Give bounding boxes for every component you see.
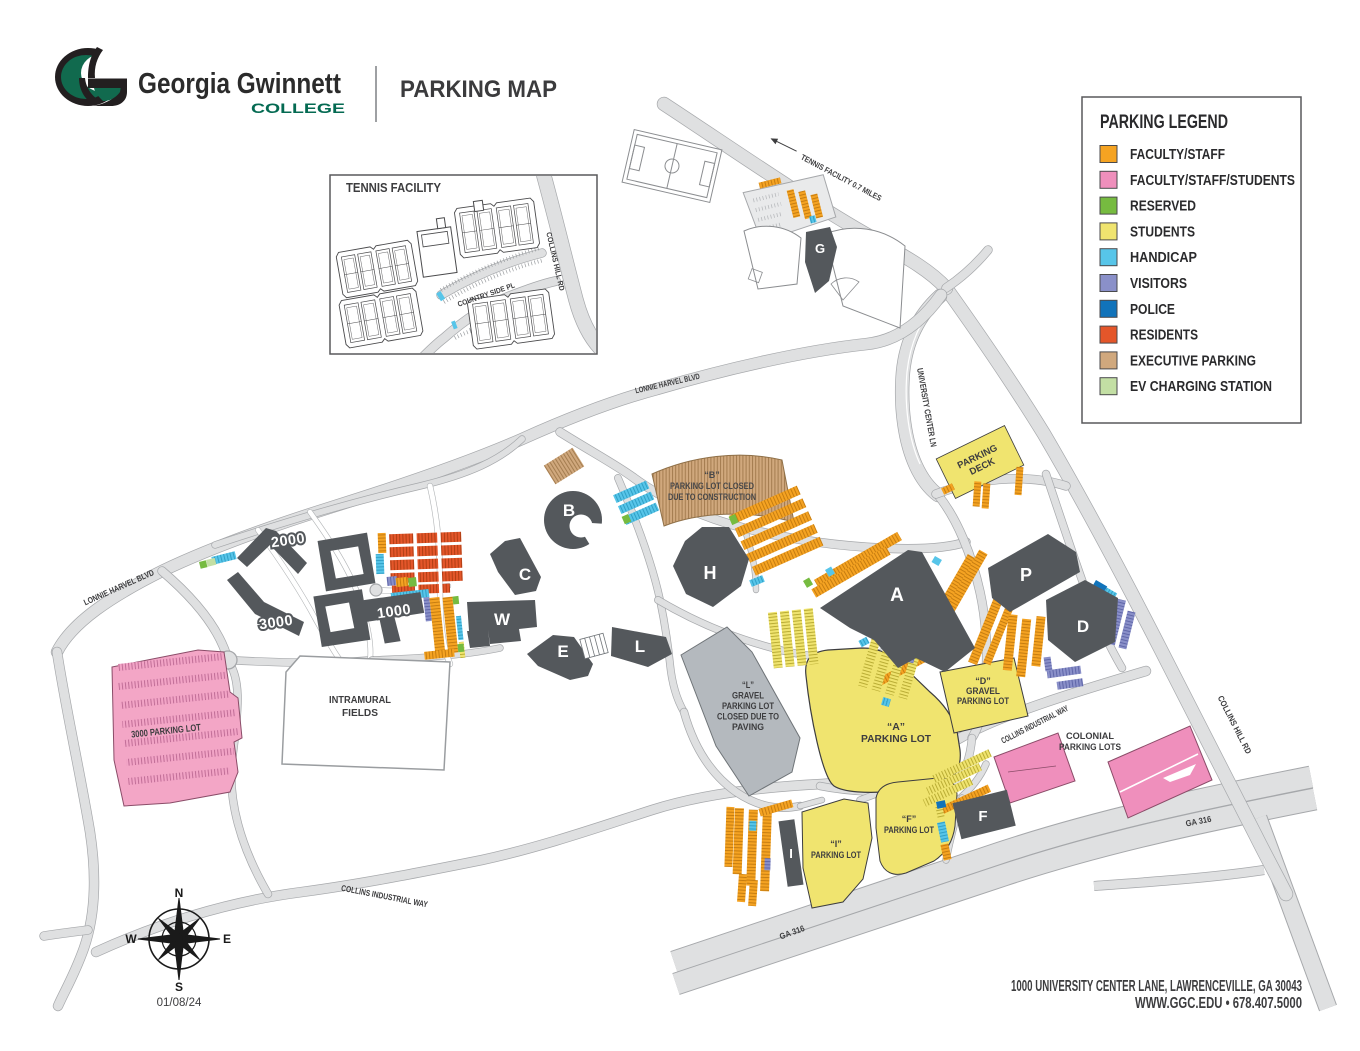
svg-text:INTRAMURAL: INTRAMURAL xyxy=(329,694,392,706)
svg-text:COLONIAL: COLONIAL xyxy=(1066,731,1114,742)
svg-text:W: W xyxy=(125,932,137,946)
svg-text:STUDENTS: STUDENTS xyxy=(1130,224,1195,240)
svg-text:HANDICAP: HANDICAP xyxy=(1130,250,1197,266)
svg-text:F: F xyxy=(978,808,987,825)
svg-text:EXECUTIVE PARKING: EXECUTIVE PARKING xyxy=(1130,353,1256,369)
svg-text:POLICE: POLICE xyxy=(1130,302,1175,318)
svg-text:GRAVEL: GRAVEL xyxy=(966,686,1000,696)
svg-text:FACULTY/STAFF/STUDENTS: FACULTY/STAFF/STUDENTS xyxy=(1130,173,1295,189)
svg-text:P: P xyxy=(1020,565,1032,585)
svg-text:DUE TO CONSTRUCTION: DUE TO CONSTRUCTION xyxy=(668,492,756,502)
svg-text:1000: 1000 xyxy=(376,602,412,623)
svg-text:H: H xyxy=(704,563,717,583)
svg-text:PARKING LOT: PARKING LOT xyxy=(811,850,861,860)
svg-text:PARKING LOT: PARKING LOT xyxy=(722,701,774,711)
svg-text:“F”: “F” xyxy=(902,814,917,824)
svg-text:PARKING LEGEND: PARKING LEGEND xyxy=(1100,112,1228,133)
svg-text:“L”: “L” xyxy=(742,680,754,690)
svg-text:L: L xyxy=(635,637,645,656)
svg-text:2000: 2000 xyxy=(270,531,306,552)
svg-text:COLLINS INDUSTRIAL WAY: COLLINS INDUSTRIAL WAY xyxy=(340,883,429,910)
svg-text:GRAVEL: GRAVEL xyxy=(732,691,764,701)
svg-text:CLOSED DUE TO: CLOSED DUE TO xyxy=(717,712,779,722)
svg-text:RESERVED: RESERVED xyxy=(1130,199,1196,215)
svg-text:E: E xyxy=(223,932,231,946)
svg-text:COLLEGE: COLLEGE xyxy=(251,100,345,116)
svg-text:S: S xyxy=(175,980,183,994)
svg-text:“A”: “A” xyxy=(887,721,905,733)
svg-text:EV CHARGING STATION: EV CHARGING STATION xyxy=(1130,379,1272,395)
svg-text:W: W xyxy=(494,610,511,629)
svg-text:01/08/24: 01/08/24 xyxy=(157,997,202,1009)
svg-text:PARKING LOT: PARKING LOT xyxy=(884,825,934,835)
svg-text:1000 UNIVERSITY CENTER LANE, L: 1000 UNIVERSITY CENTER LANE, LAWRENCEVIL… xyxy=(1011,978,1302,995)
svg-text:PARKING LOT: PARKING LOT xyxy=(957,696,1009,706)
svg-text:“B”: “B” xyxy=(704,470,720,480)
svg-text:RESIDENTS: RESIDENTS xyxy=(1130,328,1198,344)
svg-text:E: E xyxy=(557,642,568,661)
svg-text:G: G xyxy=(815,241,825,256)
svg-text:COLLINS HILL RD: COLLINS HILL RD xyxy=(1216,694,1254,756)
svg-text:I: I xyxy=(789,846,793,861)
svg-text:“I”: “I” xyxy=(830,839,842,849)
svg-text:UNIVERSITY CENTER LN: UNIVERSITY CENTER LN xyxy=(915,367,939,448)
svg-text:PARKING LOT CLOSED: PARKING LOT CLOSED xyxy=(670,481,754,491)
svg-text:VISITORS: VISITORS xyxy=(1130,276,1187,292)
svg-text:C: C xyxy=(519,565,531,584)
svg-text:PARKING MAP: PARKING MAP xyxy=(400,76,557,103)
svg-text:A: A xyxy=(890,585,904,606)
svg-text:Georgia Gwinnett: Georgia Gwinnett xyxy=(138,68,341,100)
svg-text:“D”: “D” xyxy=(975,676,991,686)
svg-text:PARKING LOTS: PARKING LOTS xyxy=(1059,742,1121,753)
svg-text:N: N xyxy=(175,886,184,900)
svg-text:FACULTY/STAFF: FACULTY/STAFF xyxy=(1130,147,1225,163)
svg-text:D: D xyxy=(1077,617,1089,636)
svg-text:PAVING: PAVING xyxy=(732,722,764,732)
svg-text:WWW.GGC.EDU • 678.407.5000: WWW.GGC.EDU • 678.407.5000 xyxy=(1135,995,1302,1012)
svg-text:PARKING LOT: PARKING LOT xyxy=(861,733,932,745)
svg-text:B: B xyxy=(563,501,575,520)
svg-text:TENNIS FACILITY: TENNIS FACILITY xyxy=(346,180,441,195)
svg-text:FIELDS: FIELDS xyxy=(342,707,378,719)
